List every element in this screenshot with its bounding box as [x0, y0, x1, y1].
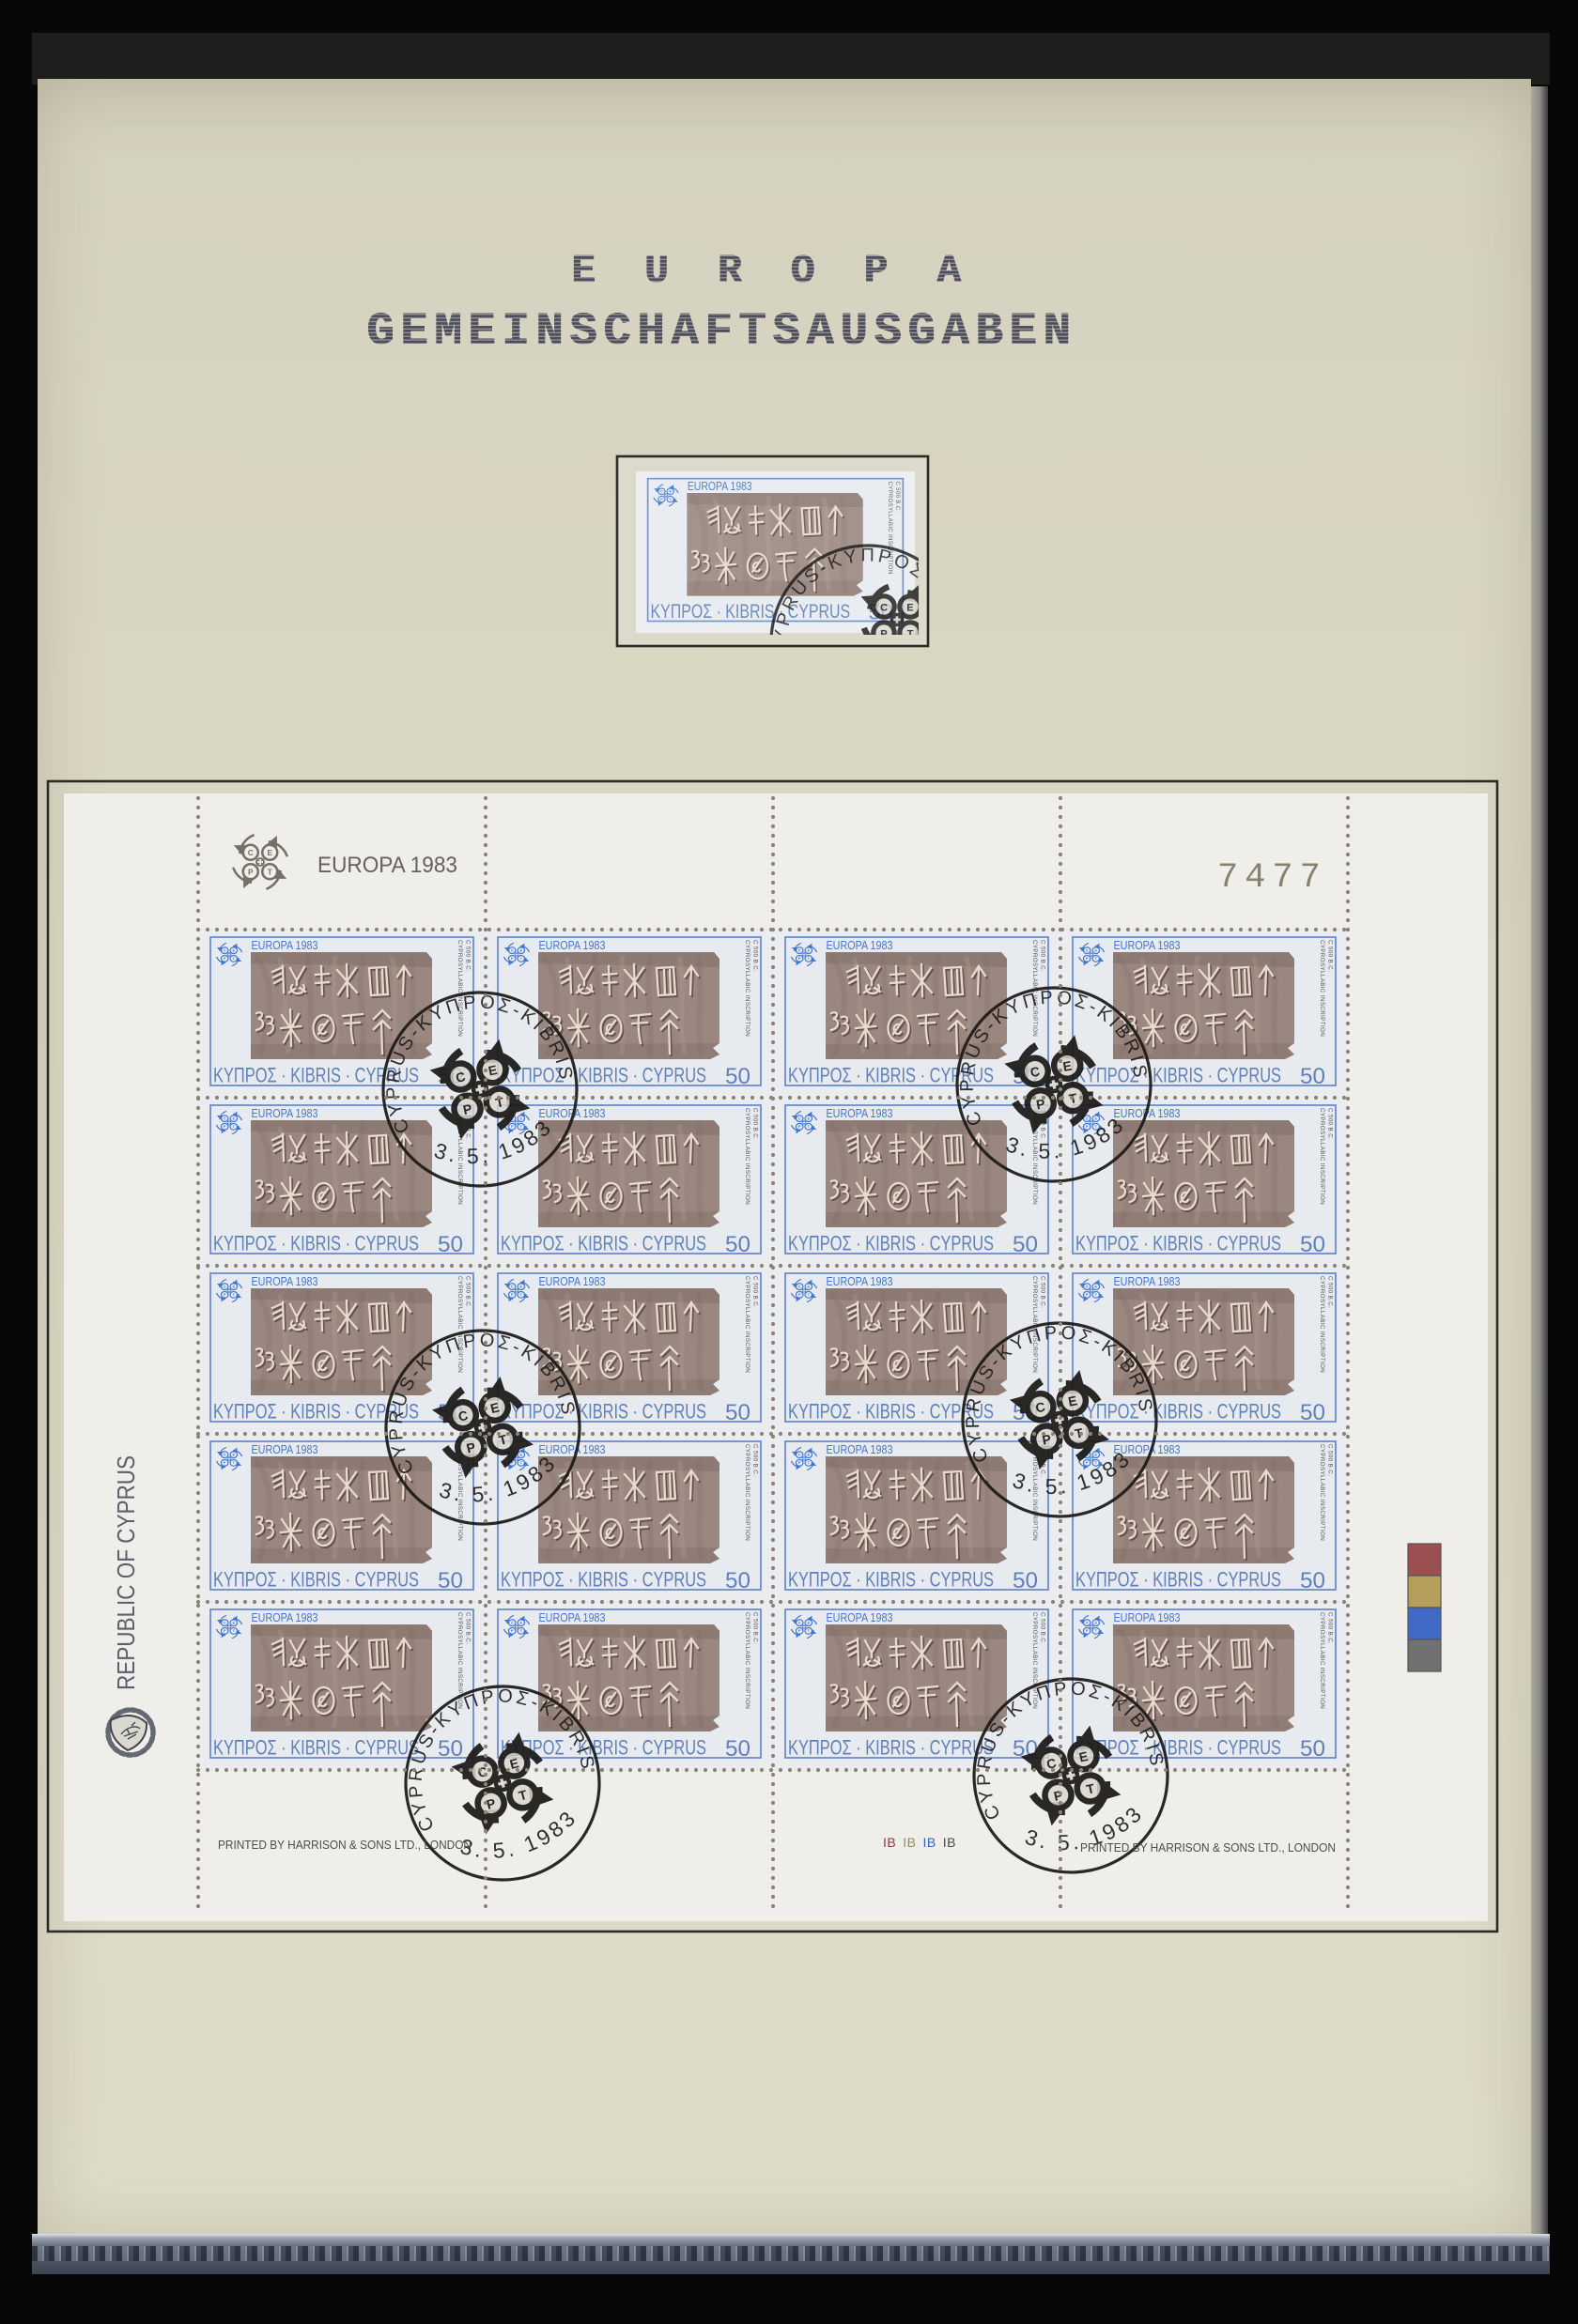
svg-text:PRINTED BY HARRISON & SONS LTD: PRINTED BY HARRISON & SONS LTD., LONDON — [218, 1839, 472, 1852]
svg-text:EUROPA 1983: EUROPA 1983 — [317, 853, 457, 878]
svg-text:REPUBLIC OF CYPRUS: REPUBLIC OF CYPRUS — [112, 1455, 140, 1690]
svg-text:7477: 7477 — [1217, 858, 1327, 898]
svg-text:PRINTED BY HARRISON & SONS LTD: PRINTED BY HARRISON & SONS LTD., LONDON — [1080, 1841, 1336, 1855]
